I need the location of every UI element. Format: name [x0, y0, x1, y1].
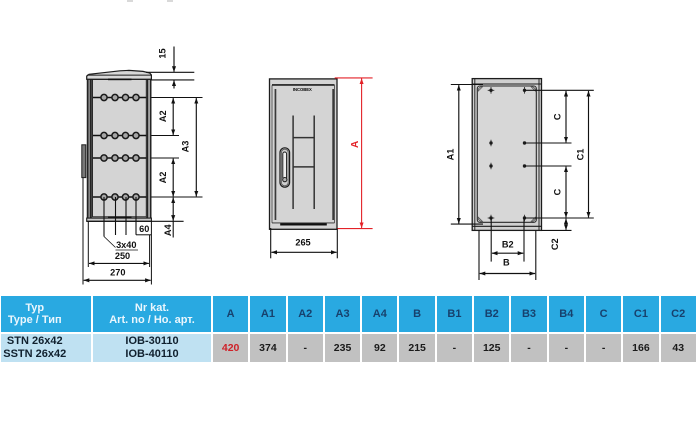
svg-text:A1: A1 — [446, 149, 456, 161]
svg-text:A2: A2 — [158, 172, 168, 184]
svg-text:B2: B2 — [502, 239, 514, 249]
svg-text:C1: C1 — [576, 149, 586, 161]
svg-text:250: 250 — [115, 251, 130, 261]
svg-text:60: 60 — [139, 224, 149, 234]
svg-text:INCOBEX: INCOBEX — [293, 87, 313, 92]
svg-text:270: 270 — [110, 267, 125, 277]
svg-text:A4: A4 — [163, 224, 173, 237]
svg-text:C2: C2 — [550, 238, 560, 250]
svg-text:C: C — [553, 188, 563, 195]
svg-text:A: A — [350, 141, 361, 148]
svg-text:C: C — [553, 113, 563, 120]
svg-text:3x40: 3x40 — [116, 240, 136, 250]
svg-text:B: B — [503, 258, 510, 268]
svg-text:15: 15 — [157, 48, 167, 58]
svg-text:A2: A2 — [158, 110, 168, 122]
svg-text:265: 265 — [295, 238, 310, 248]
svg-text:A3: A3 — [181, 141, 191, 153]
